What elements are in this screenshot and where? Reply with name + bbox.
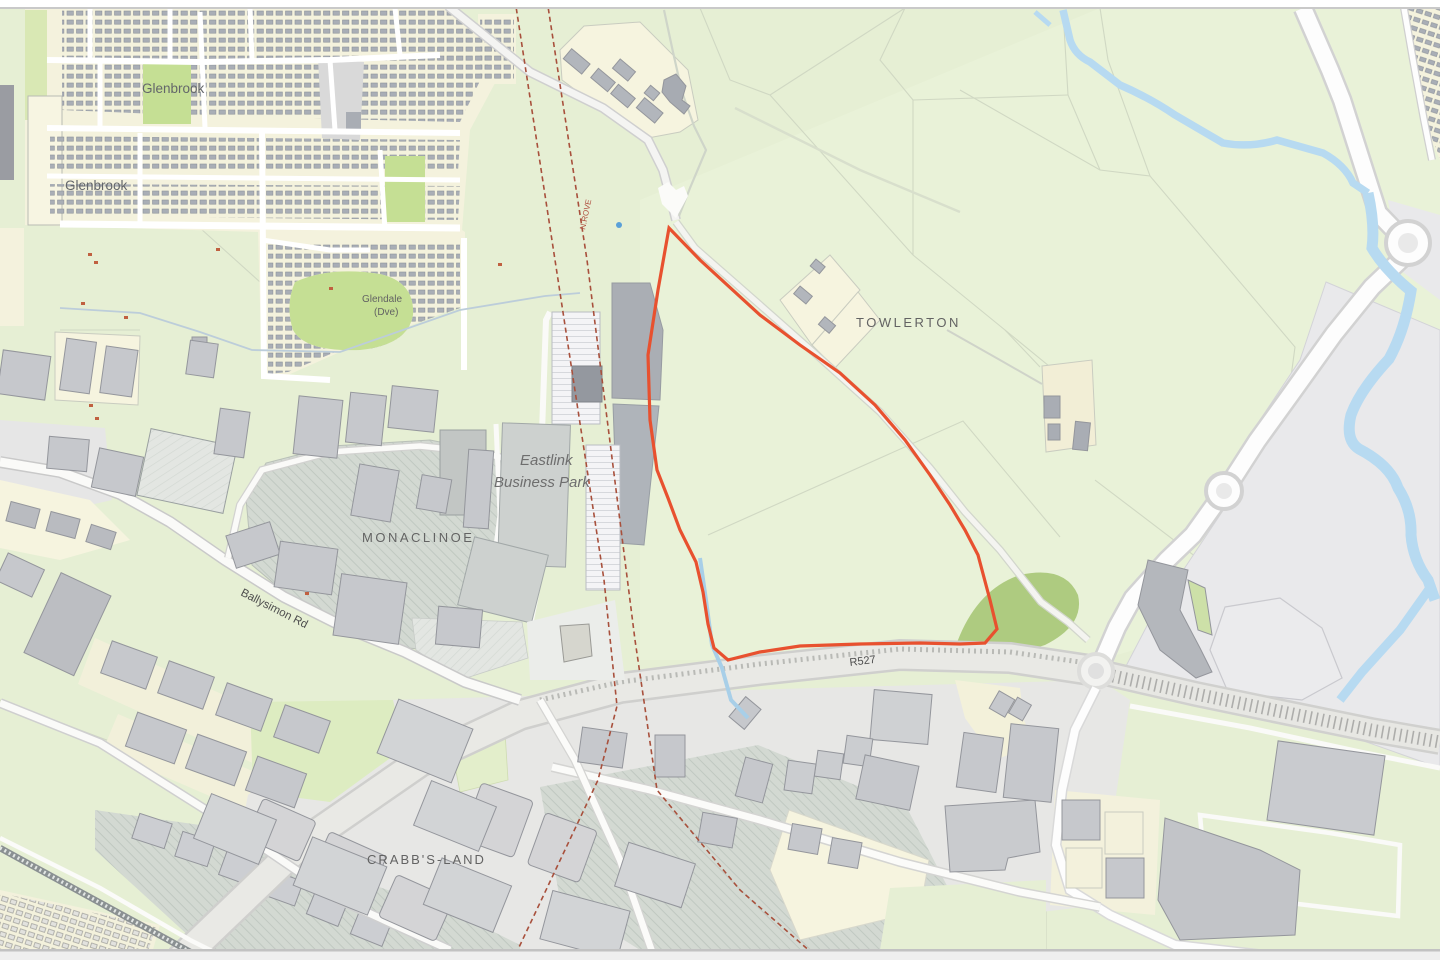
svg-text:Glendale: Glendale (362, 294, 402, 305)
svg-text:Glenbrook: Glenbrook (65, 178, 128, 193)
svg-text:Business Park: Business Park (494, 474, 591, 491)
svg-text:(Dve): (Dve) (374, 307, 398, 318)
svg-text:Eastlink: Eastlink (520, 452, 574, 469)
svg-text:MONACLINOE: MONACLINOE (362, 530, 474, 545)
svg-text:TOWLERTON: TOWLERTON (856, 315, 961, 330)
svg-text:Glenbrook: Glenbrook (142, 81, 205, 96)
svg-text:CRABB'S-LAND: CRABB'S-LAND (367, 852, 486, 867)
